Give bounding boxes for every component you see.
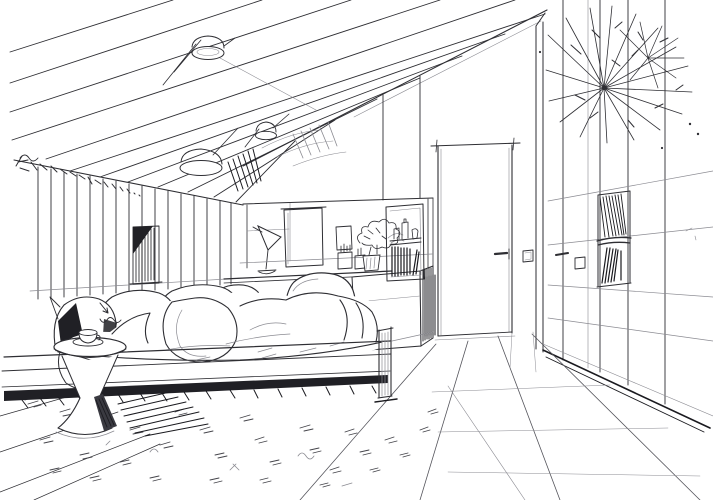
- door-handle: [495, 253, 507, 254]
- artist-signature: [16, 155, 140, 196]
- closet-handle: [556, 253, 568, 255]
- curtain-wall-left: [14, 160, 243, 299]
- sketch-page: Attic bedroom interior — pen and ink per…: [0, 0, 713, 500]
- bedroom-sketch: Attic bedroom interior — pen and ink per…: [0, 0, 713, 500]
- wardrobe-wall: [543, 0, 713, 432]
- potted-plant: [357, 219, 404, 271]
- sloped-ceiling: [10, 0, 547, 202]
- desk-lamp: [253, 226, 281, 274]
- slatted-window: [130, 226, 162, 284]
- closet-switch: [575, 257, 585, 269]
- book-niche: [597, 191, 631, 287]
- ceiling-spotlights: [163, 36, 289, 176]
- light-switch: [523, 250, 533, 262]
